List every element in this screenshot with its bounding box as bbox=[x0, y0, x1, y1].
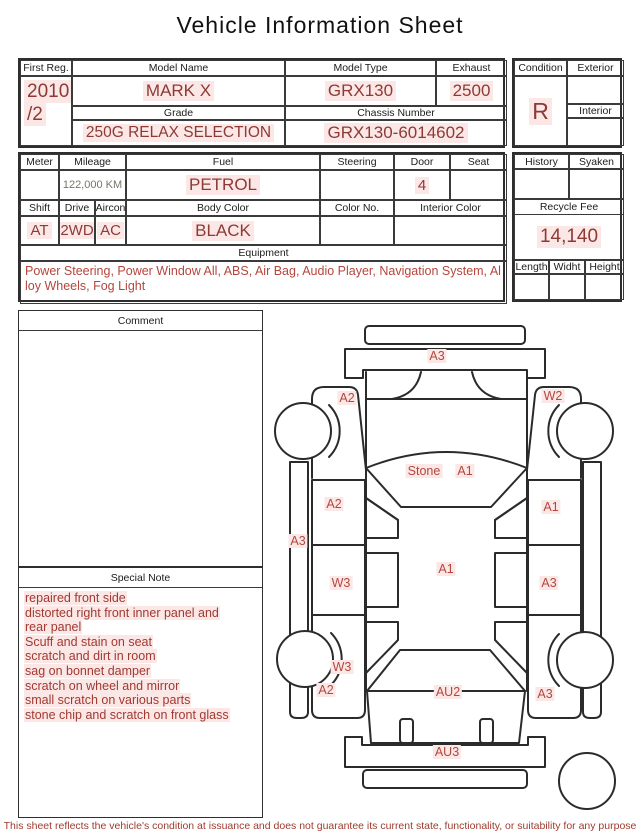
damage-label-rear-bumper: AU3 bbox=[433, 745, 461, 759]
history-value bbox=[514, 169, 569, 199]
special-note-line: scratch and dirt in room bbox=[24, 649, 259, 664]
exterior-value bbox=[567, 76, 624, 104]
exterior-header: Exterior bbox=[567, 60, 624, 76]
model-name-value: MARK X bbox=[72, 76, 285, 106]
front-top-bar bbox=[365, 326, 525, 344]
width-header: Widht bbox=[549, 260, 585, 274]
model-type-value: GRX130 bbox=[285, 76, 436, 106]
special-note-line: stone chip and scratch on front glass bbox=[24, 708, 259, 723]
body-color-value: BLACK bbox=[126, 216, 320, 245]
damage-label-right-rear-door: A3 bbox=[539, 576, 558, 590]
rear-bottom-bar bbox=[363, 770, 527, 788]
equipment-line-1: Power Steering, Power Window All, ABS, A… bbox=[25, 264, 502, 279]
spare-wheel bbox=[559, 753, 615, 809]
special-note-header: Special Note bbox=[19, 568, 262, 588]
fuel-value: PETROL bbox=[126, 170, 320, 200]
rear-left-wheel bbox=[277, 631, 333, 687]
condition-value: R bbox=[514, 76, 567, 146]
shift-header: Shift bbox=[20, 200, 59, 216]
damage-label-front-bumper: A3 bbox=[427, 349, 446, 363]
seat-header: Seat bbox=[450, 154, 507, 170]
steering-value bbox=[320, 170, 394, 200]
interior-header: Interior bbox=[567, 104, 624, 118]
left-tail-lamp bbox=[400, 719, 413, 743]
equipment-line-2: loy Wheels, Fog Light bbox=[25, 279, 502, 294]
height-value bbox=[585, 274, 624, 300]
right-front-door-window bbox=[495, 498, 527, 538]
spec-table: Meter Mileage 122,000 KM Fuel PETROL Ste… bbox=[18, 152, 505, 302]
meter-value bbox=[20, 170, 59, 200]
car-outline-drawing bbox=[270, 310, 630, 810]
comment-header: Comment bbox=[19, 311, 262, 331]
damage-label-left-rear-quarter: A2 bbox=[316, 683, 335, 697]
special-note-line: sag on bonnet damper bbox=[24, 664, 259, 679]
equipment-value: Power Steering, Power Window All, ABS, A… bbox=[20, 261, 507, 304]
left-front-door-window bbox=[366, 498, 398, 538]
left-rear-door-window bbox=[366, 553, 398, 607]
first-reg-month: /2 bbox=[24, 103, 46, 126]
special-note-line: scratch on wheel and mirror bbox=[24, 679, 259, 694]
model-name-header: Model Name bbox=[72, 60, 285, 76]
history-header: History bbox=[514, 154, 569, 169]
hood-right-arch bbox=[472, 372, 501, 399]
grade-value: 250G RELAX SELECTION bbox=[72, 120, 285, 146]
length-header: Length bbox=[514, 260, 549, 274]
front-right-wheel bbox=[557, 403, 613, 459]
recycle-fee-header: Recycle Fee bbox=[514, 199, 624, 214]
model-type-header: Model Type bbox=[285, 60, 436, 76]
color-no-header: Color No. bbox=[320, 200, 394, 216]
first-reg-header: First Reg. bbox=[20, 60, 72, 76]
special-note-line: distorted right front inner panel and bbox=[24, 606, 259, 621]
exhaust-value: 2500 bbox=[436, 76, 507, 106]
interior-color-header: Interior Color bbox=[394, 200, 507, 216]
steering-header: Steering bbox=[320, 154, 394, 170]
door-value: 4 bbox=[394, 170, 450, 200]
right-tail-lamp bbox=[480, 719, 493, 743]
damage-label-left-sill: A3 bbox=[288, 534, 307, 548]
interior-color-value bbox=[394, 216, 507, 245]
chassis-number-header: Chassis Number bbox=[285, 106, 507, 120]
special-note-box: Special Note repaired front side distort… bbox=[18, 567, 263, 818]
damage-label-left-front-door: A2 bbox=[324, 497, 343, 511]
aircon-value: AC bbox=[95, 216, 126, 245]
aircon-header: Aircon bbox=[95, 200, 126, 216]
damage-label-rear-window: AU2 bbox=[434, 685, 462, 699]
hood-left-arch bbox=[392, 372, 421, 399]
special-note-line: Scuff and stain on seat bbox=[24, 635, 259, 650]
condition-panel: Condition R Exterior Interior bbox=[512, 58, 622, 148]
condition-header: Condition bbox=[514, 60, 567, 76]
rear-right-wheel bbox=[557, 632, 613, 688]
interior-value bbox=[567, 118, 624, 146]
grade-header: Grade bbox=[72, 106, 285, 120]
windshield-shape bbox=[366, 452, 527, 507]
drive-header: Drive bbox=[59, 200, 95, 216]
length-value bbox=[514, 274, 549, 300]
damage-label-windshield: A1 bbox=[455, 464, 474, 478]
vehicle-information-sheet: Vehicle Information Sheet First Reg. 201… bbox=[0, 0, 640, 835]
mileage-value: 122,000 KM bbox=[59, 170, 126, 200]
special-note-line: small scratch on various parts bbox=[24, 693, 259, 708]
equipment-header: Equipment bbox=[20, 245, 507, 261]
car-damage-diagram: A3 A2 W2 Stone A1 A2 A1 A3 A1 W3 A3 W3 A… bbox=[270, 310, 630, 810]
damage-label-left-rear-wheel: W3 bbox=[331, 660, 354, 674]
damage-label-left-rear-door: W3 bbox=[330, 576, 353, 590]
damage-label-right-rear-quarter: A3 bbox=[535, 687, 554, 701]
fuel-header: Fuel bbox=[126, 154, 320, 170]
syaken-value bbox=[569, 169, 624, 199]
seat-value bbox=[450, 170, 507, 200]
exhaust-header: Exhaust bbox=[436, 60, 507, 76]
height-header: Height bbox=[585, 260, 624, 274]
first-reg-year: 2010 bbox=[24, 80, 72, 103]
damage-label-roof: A1 bbox=[436, 562, 455, 576]
special-note-line: repaired front side bbox=[24, 591, 259, 606]
right-quarter-window bbox=[495, 622, 527, 673]
fee-panel: History Syaken Recycle Fee 14,140 Length… bbox=[512, 152, 622, 302]
first-reg-value: 2010 /2 bbox=[20, 76, 72, 146]
front-left-wheel bbox=[275, 403, 331, 459]
special-note-line: rear panel bbox=[24, 620, 259, 635]
mileage-header: Mileage bbox=[59, 154, 126, 170]
disclaimer-text: This sheet reflects the vehicle's condit… bbox=[0, 820, 640, 832]
damage-label-right-front-door: A1 bbox=[541, 500, 560, 514]
damage-label-left-front-fender: A2 bbox=[337, 391, 356, 405]
comment-box: Comment bbox=[18, 310, 263, 567]
syaken-header: Syaken bbox=[569, 154, 624, 169]
body-color-header: Body Color bbox=[126, 200, 320, 216]
identity-table: First Reg. 2010 /2 Model Name MARK X Mod… bbox=[18, 58, 505, 148]
recycle-fee-value: 14,140 bbox=[514, 214, 624, 260]
color-no-value bbox=[320, 216, 394, 245]
page-title: Vehicle Information Sheet bbox=[0, 12, 640, 39]
meter-header: Meter bbox=[20, 154, 59, 170]
damage-label-windshield-note: Stone bbox=[406, 464, 443, 478]
right-rear-door-window bbox=[495, 553, 527, 607]
door-header: Door bbox=[394, 154, 450, 170]
shift-value: AT bbox=[20, 216, 59, 245]
width-value bbox=[549, 274, 585, 300]
damage-label-right-front-fender: W2 bbox=[542, 389, 565, 403]
special-note-lines: repaired front side distorted right fron… bbox=[24, 591, 259, 722]
drive-value: 2WD bbox=[59, 216, 95, 245]
chassis-number-value: GRX130-6014602 bbox=[285, 120, 507, 146]
left-quarter-window bbox=[366, 622, 398, 673]
